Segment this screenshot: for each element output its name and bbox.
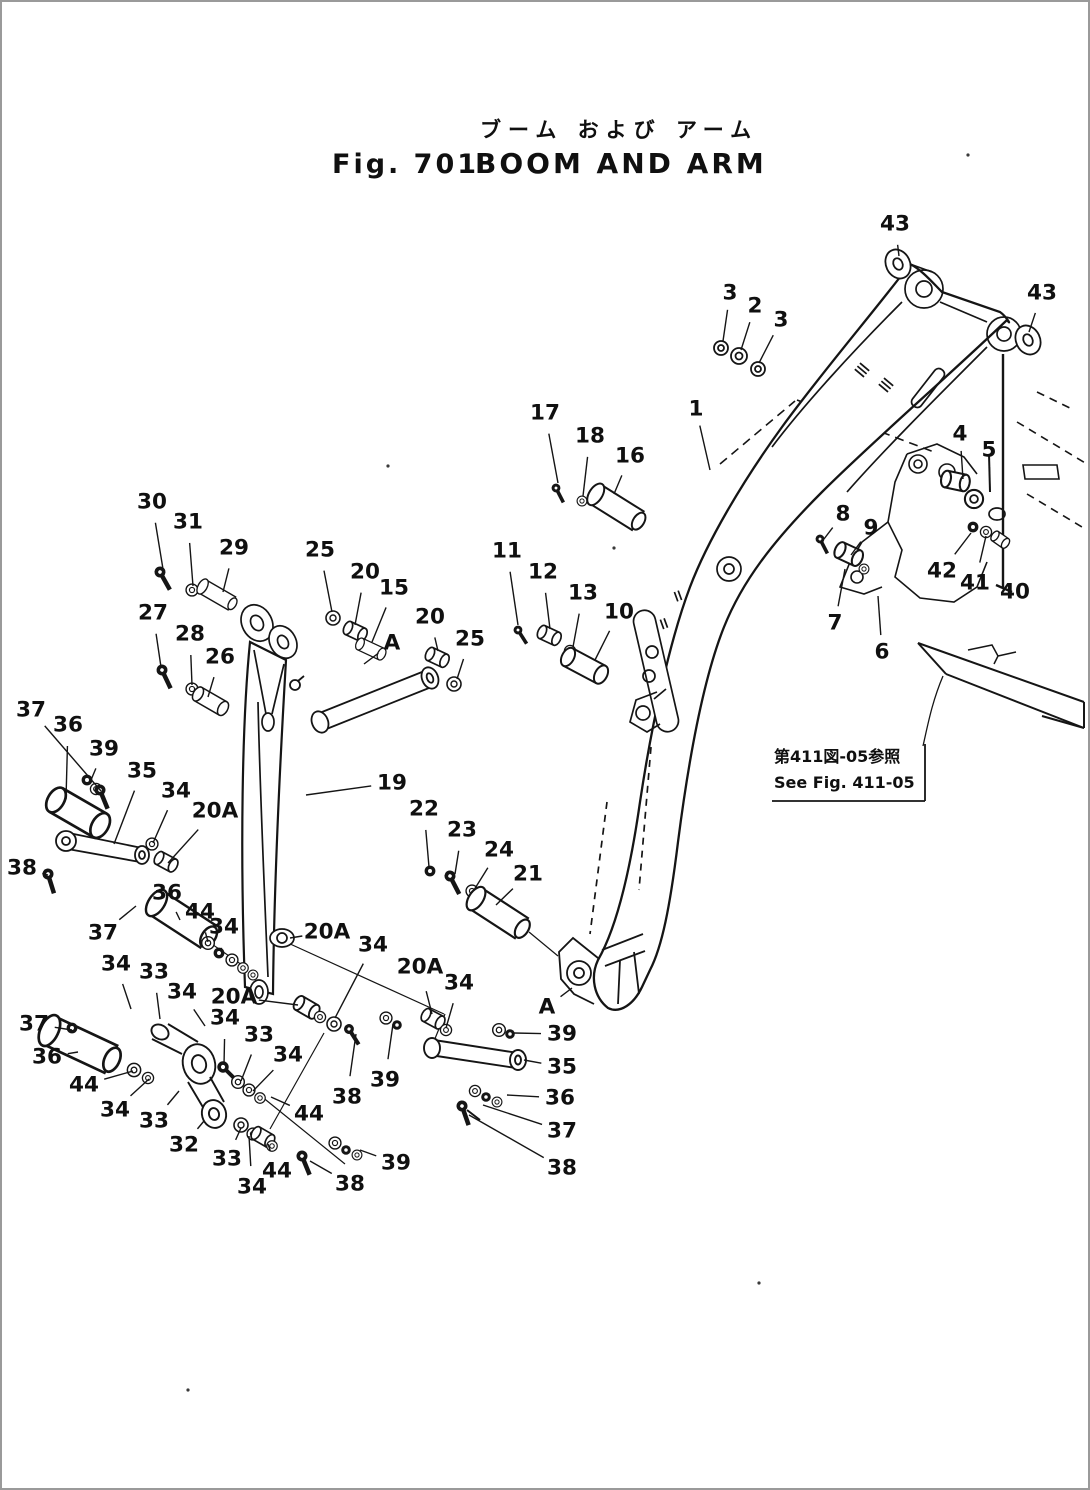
- part-callout-label: 21: [513, 862, 543, 887]
- callout-leader: [157, 993, 160, 1019]
- callout-leader: [123, 984, 131, 1009]
- part-callout-label: 28: [175, 622, 205, 647]
- callout-leader: [426, 830, 429, 867]
- part-callout-label: 10: [604, 600, 634, 625]
- callout-leader: [878, 596, 881, 635]
- part-callout-label: 22: [409, 797, 439, 822]
- callout-leader: [483, 1105, 542, 1124]
- part-callout-label: 13: [568, 581, 598, 606]
- part-callout-label: 20A: [397, 955, 444, 980]
- callout-leader: [259, 1000, 298, 1005]
- callout-leader: [549, 434, 558, 483]
- part-callout-label: 38: [7, 856, 37, 881]
- part-callout-label: 6: [875, 640, 890, 665]
- parts-diagram-svg: 4332343117181645894241407630312925201520…: [2, 2, 1090, 1490]
- part-callout-label: 34: [237, 1175, 267, 1200]
- callout-leader: [455, 851, 459, 874]
- part-callout-label: 34: [167, 980, 197, 1005]
- part-callout-label: 25: [455, 627, 485, 652]
- callout-leader: [191, 655, 192, 685]
- callout-leader: [119, 906, 136, 920]
- callout-leader: [723, 310, 728, 341]
- part-callout-label: 4: [953, 422, 968, 447]
- callout-leader: [167, 1091, 179, 1105]
- callout-leader: [824, 528, 833, 539]
- part-callout-label: A: [539, 995, 556, 1020]
- part-callout-label: 25: [305, 538, 335, 563]
- callout-leader: [573, 614, 579, 647]
- part-callout-label: 17: [530, 401, 560, 426]
- part-callout-label: 43: [880, 212, 910, 237]
- callout-leader: [197, 1121, 204, 1129]
- callout-leader: [131, 1079, 149, 1096]
- part-callout-label: 43: [1027, 281, 1057, 306]
- part-callout-label: 36: [152, 881, 182, 906]
- part-callout-label: 30: [137, 490, 167, 515]
- part-callout-label: 16: [615, 444, 645, 469]
- callout-leader: [980, 536, 986, 563]
- callout-leader: [306, 786, 371, 795]
- part-callout-label: 2: [748, 294, 763, 319]
- part-callout-label: 1: [689, 397, 704, 422]
- callout-leader: [595, 631, 610, 660]
- part-callout-label: 37: [16, 698, 46, 723]
- callout-leader: [759, 335, 773, 363]
- part-callout-label: 27: [138, 601, 168, 626]
- part-callout-label: 39: [89, 737, 119, 762]
- callout-leader: [91, 768, 96, 780]
- callout-leader: [114, 791, 134, 844]
- part-callout-label: 34: [100, 1098, 130, 1123]
- part-callout-label: 39: [547, 1022, 577, 1047]
- callout-leader: [388, 1024, 393, 1059]
- part-callout-label: 20A: [192, 799, 239, 824]
- part-callout-label: 31: [173, 510, 203, 535]
- part-callout-label: 36: [545, 1086, 575, 1111]
- part-callout-label: 9: [864, 516, 879, 541]
- part-callout-label: 40: [1000, 580, 1030, 605]
- callout-leader: [355, 593, 361, 625]
- callout-leader: [514, 1033, 541, 1034]
- callout-leader: [700, 426, 710, 470]
- part-callout-label: 36: [32, 1045, 62, 1070]
- callout-leader: [155, 523, 163, 569]
- part-callout-label: 23: [447, 818, 477, 843]
- callout-leader: [223, 568, 229, 592]
- hardware-arm-bushings: [291, 994, 451, 1044]
- part-callout-label: 33: [244, 1023, 274, 1048]
- part-callout-label: 38: [547, 1156, 577, 1181]
- callout-leader: [614, 475, 622, 494]
- part-callout-label: 33: [139, 1109, 169, 1134]
- part-callout-label: 33: [139, 960, 169, 985]
- part-callout-label: 18: [575, 424, 605, 449]
- part-callout-label: 38: [332, 1085, 362, 1110]
- part-callout-label: 24: [484, 838, 514, 863]
- part-callout-label: 39: [370, 1068, 400, 1093]
- part-callout-label: 34: [209, 915, 239, 940]
- callout-leader: [457, 659, 464, 679]
- part-callout-label: 34: [444, 971, 474, 996]
- callout-leader: [190, 543, 193, 586]
- parts-catalog-page: ブーム および アーム Fig. 701 BOOM AND ARM 第411図-…: [0, 0, 1090, 1490]
- hardware-link35: [451, 1024, 515, 1125]
- part-callout-label: A: [384, 631, 401, 656]
- part-callout-label: 44: [69, 1073, 99, 1098]
- callout-leader: [350, 1034, 356, 1076]
- part-callout-label: 36: [53, 713, 83, 738]
- callout-leader: [194, 1009, 205, 1026]
- part-callout-label: 19: [377, 771, 407, 796]
- callout-leader: [510, 572, 518, 625]
- part-callout-label: 29: [219, 536, 249, 561]
- callout-leader: [156, 634, 161, 667]
- callout-leader: [507, 1095, 539, 1097]
- part-callout-label: 37: [88, 921, 118, 946]
- part-callout-label: 7: [828, 611, 843, 636]
- part-callout-label: 33: [212, 1147, 242, 1172]
- part-callout-label: 3: [723, 281, 738, 306]
- callout-leader: [168, 830, 198, 863]
- callout-leader: [324, 571, 332, 612]
- boom: [559, 245, 1045, 1009]
- link-35: [424, 1038, 526, 1070]
- callout-leader: [583, 457, 588, 496]
- callout-leader: [241, 1055, 251, 1081]
- part-callout-label: 32: [169, 1133, 199, 1158]
- callout-leader: [335, 964, 363, 1018]
- part-callout-label: 20: [415, 605, 445, 630]
- hardware-left-mid: [37, 775, 180, 894]
- callout-leader: [153, 810, 168, 843]
- link-a: [290, 665, 442, 735]
- callout-leader: [249, 1136, 251, 1166]
- part-callout-label: 34: [273, 1043, 303, 1068]
- callout-leader: [989, 467, 990, 490]
- part-callout-label: 8: [836, 502, 851, 527]
- part-callout-label: 39: [381, 1151, 411, 1176]
- part-callout-label: 26: [205, 645, 235, 670]
- part-callout-label: 44: [294, 1102, 324, 1127]
- arm: [235, 599, 303, 1004]
- part-callout-label: 37: [19, 1012, 49, 1037]
- part-callout-label: 35: [547, 1055, 577, 1080]
- part-callout-label: 37: [547, 1119, 577, 1144]
- part-callout-label: 3: [774, 308, 789, 333]
- part-callout-label: 34: [210, 1006, 240, 1031]
- callout-leader: [561, 988, 572, 997]
- deck-plate: [772, 643, 1084, 801]
- part-callout-label: 5: [982, 438, 997, 463]
- part-callout-label: 34: [161, 779, 191, 804]
- part-callout-label: 15: [379, 576, 409, 601]
- part-callout-label: 20: [350, 560, 380, 585]
- part-callout-label: 38: [335, 1172, 365, 1197]
- callout-leader: [741, 322, 750, 350]
- callout-leader: [446, 1003, 453, 1028]
- part-callout-label: 11: [492, 539, 522, 564]
- part-callout-label: 34: [358, 933, 388, 958]
- part-callout-label: 34: [101, 952, 131, 977]
- callout-leader: [253, 1070, 273, 1091]
- part-callout-label: 41: [960, 571, 990, 596]
- part-callout-label: 42: [927, 559, 957, 584]
- part-callout-label: 12: [528, 560, 558, 585]
- callout-leader: [310, 1161, 332, 1174]
- part-callout-label: 20A: [304, 920, 351, 945]
- callout-leader: [955, 533, 971, 554]
- callout-leader: [224, 1039, 225, 1065]
- part-callout-label: 35: [127, 759, 157, 784]
- callout-leader: [546, 593, 550, 629]
